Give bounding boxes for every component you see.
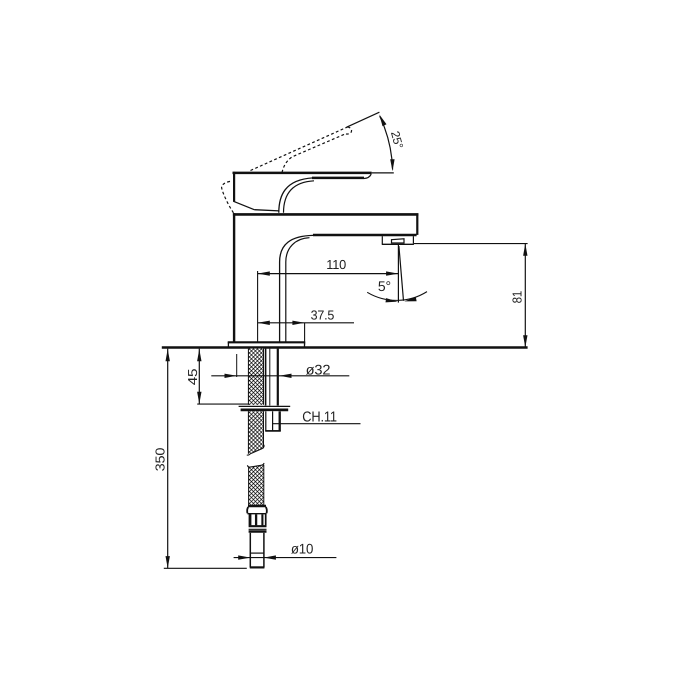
svg-text:ø10: ø10 <box>291 541 314 557</box>
svg-text:350: 350 <box>153 448 168 472</box>
svg-text:5°: 5° <box>378 278 391 294</box>
svg-text:ø32: ø32 <box>306 361 331 377</box>
svg-text:37.5: 37.5 <box>311 307 335 322</box>
svg-text:45: 45 <box>185 369 200 386</box>
svg-text:81: 81 <box>510 291 525 304</box>
svg-text:CH.11: CH.11 <box>302 409 337 425</box>
svg-text:110: 110 <box>326 257 346 272</box>
svg-text:25°: 25° <box>388 130 406 151</box>
